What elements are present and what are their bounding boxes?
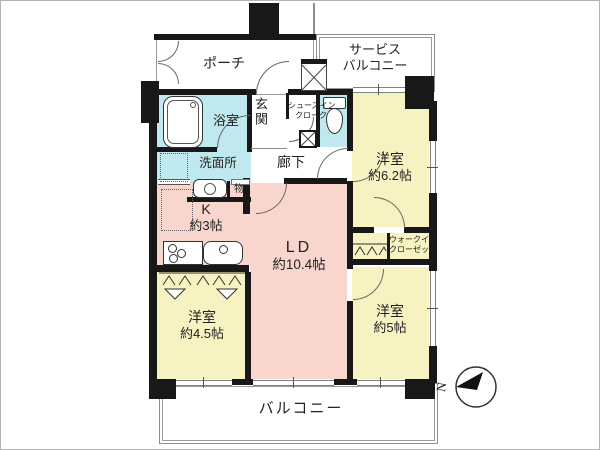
bedroom-62-size: 約6.2帖 [351, 168, 429, 184]
service-balcony-label: サービス バルコニー [331, 42, 419, 73]
pillar-bottom-right [405, 379, 435, 399]
sink-icon [203, 241, 243, 265]
pillar-left [141, 81, 159, 123]
window-service-balcony [353, 87, 405, 93]
window-bedroom5 [357, 380, 405, 386]
entrance-step-line [251, 148, 287, 149]
boundary-line-top [313, 3, 315, 35]
burner [177, 249, 186, 258]
shoe-closet-label: シューズイン クローク [288, 101, 334, 120]
window-tick [293, 377, 294, 388]
bathtub-drain [190, 102, 196, 108]
bedroom-45-size: 約4.5帖 [159, 326, 245, 342]
walk-in-closet-label: ウォークイン クローゼット [389, 235, 431, 254]
entrance-label: 玄関 [253, 97, 268, 127]
wall-kitchen-bottom [149, 265, 249, 272]
wall-wic-top-a [352, 227, 374, 233]
storage-label: 物 [230, 184, 248, 196]
wall-porch-top [154, 34, 316, 40]
window-bedroom45 [176, 380, 232, 386]
compass-icon: N [443, 363, 499, 411]
bedroom-45-label: 洋室 約4.5帖 [159, 309, 245, 341]
bedroom-62-label: 洋室 約6.2帖 [351, 151, 429, 183]
washbasin-bowl [204, 183, 216, 195]
shoe-closet-line1: シューズイン [288, 101, 334, 111]
washbasin-icon [193, 179, 227, 198]
hallway-label: 廊下 [259, 154, 323, 171]
wall-right-a [429, 101, 437, 141]
wall-top-left [149, 89, 256, 95]
wall-left [149, 121, 157, 383]
balcony-label: バルコニー [221, 400, 381, 418]
shoe-closet-line2: クローク [288, 111, 334, 121]
kitchen-label: K 約3帖 [176, 201, 236, 233]
wall-wic-top-b [404, 227, 429, 233]
wall-bottom-b [334, 379, 357, 385]
window-tick [378, 84, 379, 95]
bathtub-icon [163, 96, 203, 148]
living-dining-label: LD 約10.4帖 [259, 238, 339, 273]
washer-space-symbol [160, 153, 188, 182]
service-balcony-line1: サービス [331, 42, 419, 58]
bedroom-5-size: 約5帖 [351, 320, 429, 336]
bedroom-5-name: 洋室 [351, 303, 429, 320]
stove-icon [163, 241, 203, 265]
burner [169, 254, 178, 263]
bathroom-label: 浴室 [203, 113, 249, 129]
wall-right-b [429, 193, 437, 271]
wic-line2: クローゼット [389, 245, 431, 255]
bedroom-5-label: 洋室 約5帖 [351, 303, 429, 335]
living-dining-size: 約10.4帖 [259, 257, 339, 273]
service-balcony-line2: バルコニー [331, 58, 419, 74]
bedroom-62-name: 洋室 [351, 151, 429, 168]
window-tick [203, 377, 204, 388]
wall-bottom-a [232, 379, 253, 385]
bedroom-45-name: 洋室 [159, 309, 245, 326]
pillar-bottom-left [149, 379, 176, 399]
window-tick [380, 377, 381, 388]
wic-hanger-symbol [353, 243, 387, 257]
burner [168, 244, 177, 253]
wall-bedroom62-left-a [347, 89, 353, 151]
wall-wic-bottom [352, 259, 429, 265]
wall-bedroom45-right [245, 272, 251, 383]
washroom-label: 洗面所 [187, 156, 249, 171]
porch-label: ポーチ [169, 55, 279, 72]
faucet [219, 245, 228, 254]
kitchen-name: K [176, 201, 236, 218]
pipe-space-small-icon [299, 130, 317, 148]
floor-plan: N ポーチ サービス バルコニー 浴室 玄関 シューズイン クローク 廊下 洗面… [0, 0, 600, 450]
kitchen-size: 約3帖 [176, 218, 236, 234]
closet-hanger-symbol [159, 272, 245, 288]
closet-folding-door-symbol [159, 288, 245, 301]
wic-line1: ウォークイン [389, 235, 431, 245]
pipe-space-icon [301, 59, 327, 91]
wall-right-c [429, 346, 437, 383]
pillar-top [249, 3, 279, 40]
living-dining-name: LD [259, 238, 339, 257]
